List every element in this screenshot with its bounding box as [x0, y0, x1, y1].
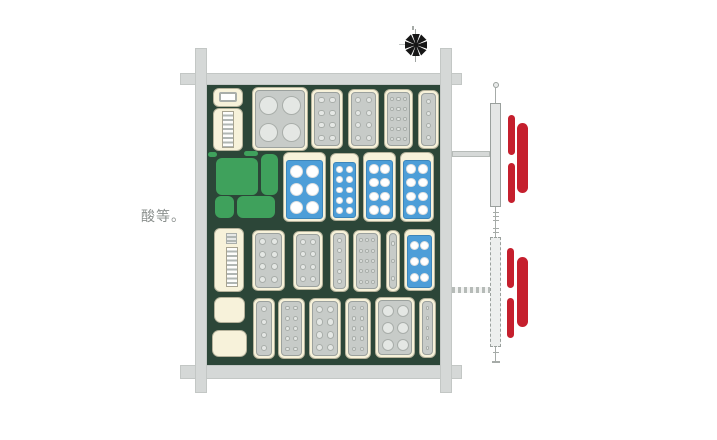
dot	[396, 97, 400, 101]
service-column-top-stem	[495, 88, 496, 103]
plain-cabinet	[214, 297, 245, 323]
dot	[259, 251, 266, 258]
dot	[293, 326, 298, 331]
dot	[369, 164, 379, 174]
dot	[336, 197, 343, 204]
radiator-bar	[507, 298, 514, 338]
dot	[396, 137, 400, 141]
shelf-rack	[222, 111, 234, 148]
dot	[290, 201, 303, 214]
shelf-rack	[226, 247, 238, 287]
radiator-bar	[508, 115, 515, 155]
dot	[359, 259, 363, 263]
dot	[327, 331, 335, 339]
dot	[410, 241, 419, 250]
dot	[380, 205, 390, 215]
dot	[337, 238, 342, 243]
radiator-bar	[508, 163, 515, 203]
dot	[369, 178, 379, 188]
dot	[360, 316, 365, 321]
dot	[426, 306, 430, 310]
dot	[380, 164, 390, 174]
dot	[418, 205, 428, 215]
service-column-top-tick	[493, 216, 499, 217]
service-column-top-stem	[495, 207, 496, 227]
dot	[300, 264, 306, 270]
dot	[261, 332, 267, 338]
dot	[382, 305, 394, 317]
dot	[366, 135, 372, 141]
dot	[406, 205, 416, 215]
dot	[396, 127, 400, 131]
dot	[369, 192, 379, 202]
dot	[406, 178, 416, 188]
dot	[271, 238, 278, 245]
room-note-label: 酸等。	[141, 206, 186, 226]
dot	[329, 135, 335, 141]
dot	[426, 99, 431, 104]
dot	[396, 107, 400, 111]
dot	[426, 111, 431, 116]
dot	[336, 166, 343, 173]
green-table	[237, 196, 275, 218]
dot	[346, 166, 353, 173]
dot	[329, 110, 335, 116]
dot	[285, 326, 290, 331]
service-column-bottom	[490, 237, 501, 347]
dot	[285, 347, 290, 352]
dot	[406, 192, 416, 202]
dot	[371, 259, 375, 263]
dot	[366, 110, 372, 116]
floor-plan-canvas: 酸等。	[0, 0, 717, 440]
dot	[327, 318, 335, 326]
wall-left	[195, 48, 207, 393]
service-column-bottom-tick	[493, 232, 499, 233]
dot	[346, 197, 353, 204]
dot	[420, 241, 429, 250]
dot	[310, 276, 316, 282]
dot	[396, 117, 400, 121]
dot	[282, 96, 301, 115]
dot	[359, 280, 363, 284]
dot	[410, 257, 419, 266]
dot	[285, 316, 290, 321]
dot	[365, 249, 369, 253]
dot	[397, 305, 409, 317]
plain-cabinet	[212, 330, 247, 357]
dot	[271, 263, 278, 270]
service-column-top-connector	[452, 151, 490, 157]
dot	[346, 187, 353, 194]
radiator-bar	[517, 257, 528, 327]
dot	[282, 123, 301, 142]
dot	[380, 192, 390, 202]
service-column-bottom-tick	[493, 352, 499, 353]
radiator-bar	[517, 123, 528, 193]
dot	[310, 264, 316, 270]
dot	[371, 249, 375, 253]
service-column-bottom-end	[492, 361, 500, 363]
dot	[426, 336, 430, 340]
dot	[306, 165, 319, 178]
dot	[426, 316, 430, 320]
dot	[290, 183, 303, 196]
dot	[382, 322, 394, 334]
wall-right	[440, 48, 452, 393]
dot	[365, 259, 369, 263]
dot	[318, 110, 324, 116]
dot	[352, 316, 357, 321]
dot	[391, 276, 396, 281]
dot	[261, 345, 267, 351]
dot	[316, 318, 324, 326]
service-column-bottom-connector	[452, 287, 490, 293]
dot	[346, 207, 353, 214]
dot	[259, 123, 278, 142]
service-column-top	[490, 103, 501, 207]
fan-leader-tick	[412, 26, 414, 30]
dot	[418, 164, 428, 174]
dot	[346, 176, 353, 183]
radiator-bar	[507, 248, 514, 288]
dot	[271, 251, 278, 258]
dot	[371, 280, 375, 284]
dot	[300, 276, 306, 282]
wall-bottom	[180, 365, 462, 379]
green-ledge	[244, 151, 258, 156]
dot	[290, 165, 303, 178]
dot	[337, 269, 342, 274]
dot	[316, 331, 324, 339]
dot	[359, 249, 363, 253]
service-column-bottom-stem	[495, 225, 496, 237]
dot	[369, 205, 379, 215]
sink-basin	[219, 92, 237, 102]
dot	[397, 322, 409, 334]
dot	[259, 96, 278, 115]
service-column-top-knob	[493, 82, 499, 88]
service-column-top-tick	[493, 212, 499, 213]
dot	[293, 316, 298, 321]
exhaust-fan-icon	[403, 32, 429, 58]
dot	[337, 248, 342, 253]
dot	[426, 346, 430, 350]
service-column-top-tick	[493, 220, 499, 221]
dot	[397, 339, 409, 351]
green-table	[216, 158, 258, 195]
dot	[259, 238, 266, 245]
service-column-bottom-tick	[493, 228, 499, 229]
gray-workbench-panel	[348, 301, 368, 356]
dot	[285, 336, 290, 341]
green-table	[215, 196, 234, 218]
wall-top	[180, 73, 462, 85]
dot	[318, 135, 324, 141]
dot	[271, 276, 278, 283]
dot	[426, 326, 430, 330]
green-ledge	[208, 152, 217, 157]
dot	[418, 192, 428, 202]
green-table	[261, 154, 278, 195]
dot	[382, 339, 394, 351]
dot	[365, 280, 369, 284]
shelf-box	[226, 233, 237, 244]
dot	[418, 178, 428, 188]
dot	[285, 306, 290, 311]
dot	[406, 164, 416, 174]
